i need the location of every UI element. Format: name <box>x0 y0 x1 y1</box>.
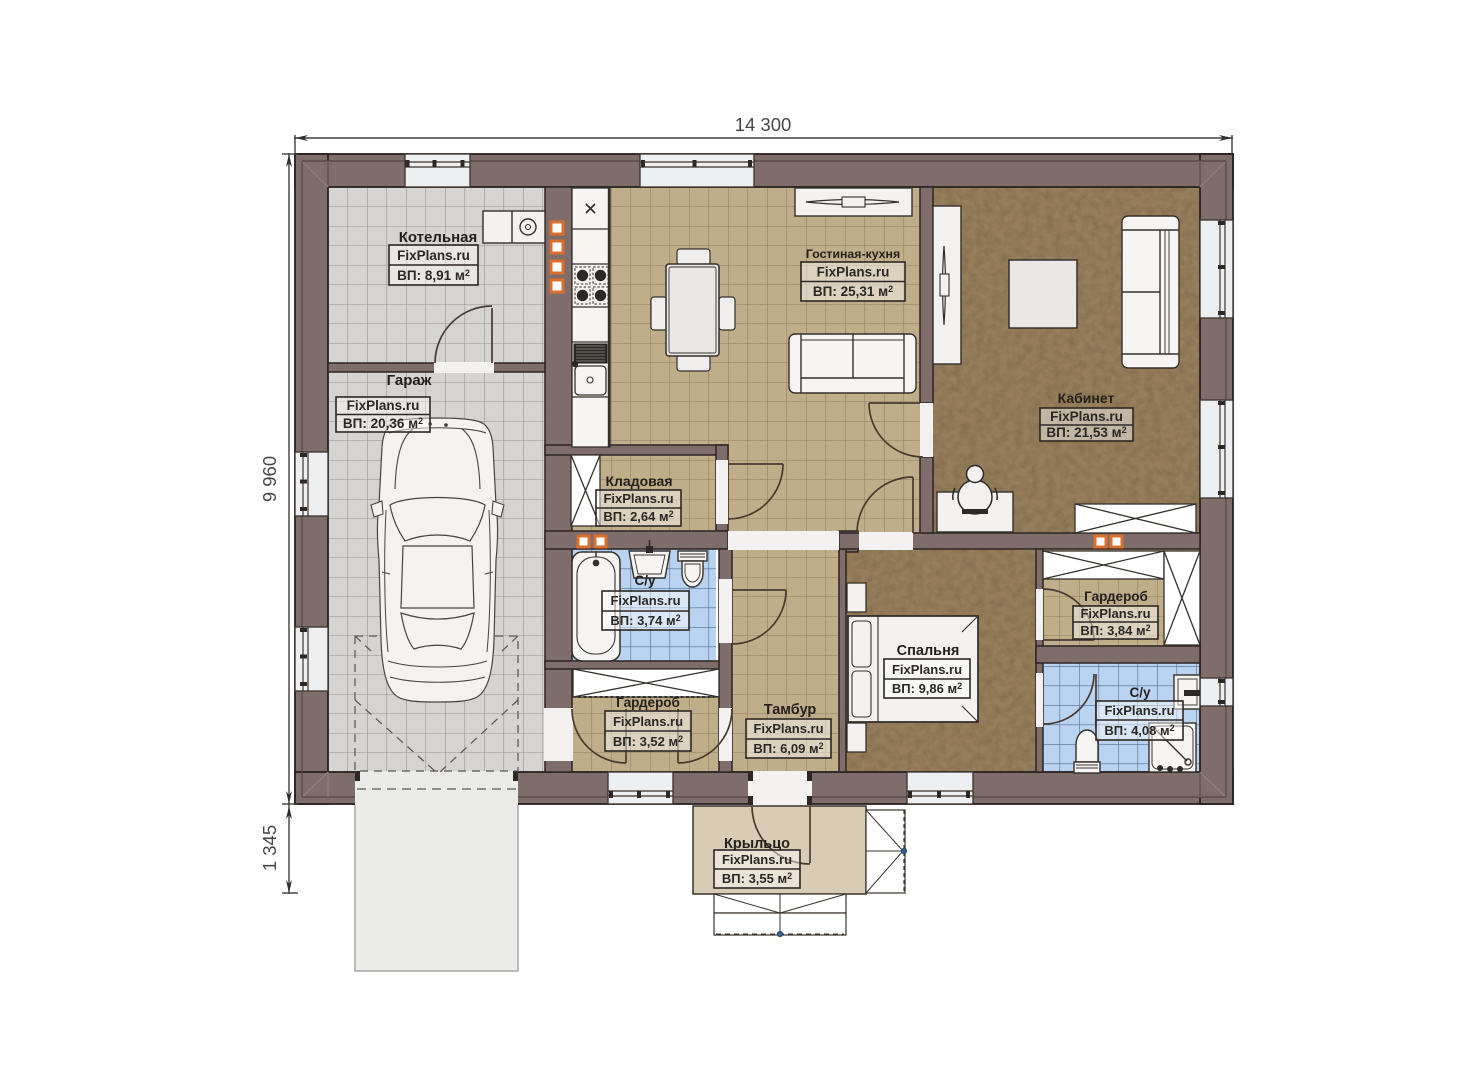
svg-text:ВП: 20,36 м2: ВП: 20,36 м2 <box>343 416 423 431</box>
svg-text:ВП: 8,91 м2: ВП: 8,91 м2 <box>397 268 470 283</box>
svg-text:FixPlans.ru: FixPlans.ru <box>892 662 962 677</box>
svg-text:FixPlans.ru: FixPlans.ru <box>1080 606 1150 621</box>
svg-text:Кладовая: Кладовая <box>605 473 672 489</box>
svg-text:Котельная: Котельная <box>399 229 478 246</box>
svg-text:Кабинет: Кабинет <box>1058 390 1115 406</box>
svg-text:Гостиная-кухня: Гостиная-кухня <box>806 247 900 261</box>
svg-text:ВП: 3,74 м2: ВП: 3,74 м2 <box>610 613 680 628</box>
svg-text:Гардероб: Гардероб <box>616 695 680 710</box>
svg-text:Гараж: Гараж <box>387 372 432 389</box>
svg-text:С/у: С/у <box>1129 685 1151 700</box>
svg-text:С/у: С/у <box>634 573 656 588</box>
svg-text:ВП: 21,53 м2: ВП: 21,53 м2 <box>1046 425 1126 440</box>
svg-text:FixPlans.ru: FixPlans.ru <box>347 398 420 413</box>
svg-text:9 960: 9 960 <box>259 456 280 502</box>
svg-text:ВП: 2,64 м2: ВП: 2,64 м2 <box>603 509 673 524</box>
svg-text:1 345: 1 345 <box>259 825 280 871</box>
svg-text:Тамбур: Тамбур <box>764 702 817 718</box>
svg-text:ВП: 3,84 м2: ВП: 3,84 м2 <box>1080 623 1150 638</box>
svg-text:FixPlans.ru: FixPlans.ru <box>603 491 673 506</box>
svg-text:FixPlans.ru: FixPlans.ru <box>753 721 823 736</box>
svg-text:FixPlans.ru: FixPlans.ru <box>613 714 683 729</box>
svg-text:ВП: 25,31 м2: ВП: 25,31 м2 <box>813 284 893 299</box>
svg-text:FixPlans.ru: FixPlans.ru <box>1104 703 1174 718</box>
svg-text:Спальня: Спальня <box>897 643 960 659</box>
svg-text:ВП: 3,55 м2: ВП: 3,55 м2 <box>722 871 792 886</box>
svg-text:ВП: 4,08 м2: ВП: 4,08 м2 <box>1104 723 1174 738</box>
svg-text:14 300: 14 300 <box>735 114 792 135</box>
svg-text:FixPlans.ru: FixPlans.ru <box>397 248 470 263</box>
svg-text:FixPlans.ru: FixPlans.ru <box>722 852 792 867</box>
svg-text:FixPlans.ru: FixPlans.ru <box>610 593 680 608</box>
svg-text:ВП: 9,86 м2: ВП: 9,86 м2 <box>892 681 962 696</box>
svg-text:Гардероб: Гардероб <box>1084 589 1148 604</box>
svg-text:ВП: 6,09 м2: ВП: 6,09 м2 <box>753 741 823 756</box>
svg-text:FixPlans.ru: FixPlans.ru <box>1050 409 1123 424</box>
svg-text:FixPlans.ru: FixPlans.ru <box>817 265 890 280</box>
svg-text:ВП: 3,52 м2: ВП: 3,52 м2 <box>613 734 683 749</box>
